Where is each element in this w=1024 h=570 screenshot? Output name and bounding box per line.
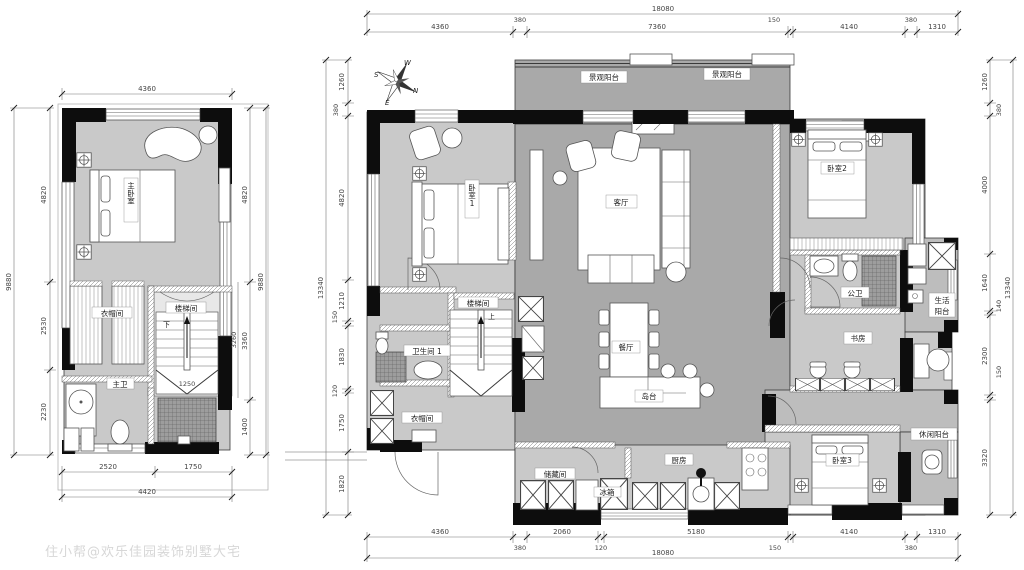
- dim-main-top-total: 18080: [652, 5, 674, 13]
- room-label-kitchen: 厨房: [672, 455, 687, 465]
- dim: 1260: [981, 73, 989, 91]
- dim: 150: [769, 544, 781, 552]
- dim-left-plan-left-total: 9880: [5, 273, 13, 291]
- dims-main-top: 18080 4360 380 7360 150 4140 380 1310: [364, 5, 961, 38]
- dim: 380: [514, 544, 526, 552]
- dim: 4000: [981, 176, 989, 194]
- dim: 380: [514, 16, 526, 24]
- room-label-service-balcony-2: 阳台: [935, 306, 950, 316]
- side-chair: [199, 126, 217, 144]
- dim-main-left-total: 13340: [317, 277, 325, 299]
- nightstand-lamp-icon: [77, 153, 91, 167]
- room-label-view-balcony-1: 景观阳台: [589, 72, 619, 82]
- dim: 4820: [338, 189, 346, 207]
- room-label-dining: 餐厅: [619, 343, 634, 352]
- dim: 380: [905, 16, 917, 24]
- dim: 4820: [241, 186, 249, 204]
- room-label-bedroom3: 卧室3: [832, 455, 852, 465]
- floorplan-drawing: 主卧室 衣帽间 楼梯间 下 主卫: [0, 0, 1024, 570]
- stair-down-mark: 下: [163, 321, 170, 329]
- compass-e: E: [385, 99, 390, 107]
- left-plan: 主卧室 衣帽间 楼梯间 下 主卫: [58, 104, 268, 490]
- dim: 2060: [553, 528, 571, 536]
- room-label-main-closet: 衣帽间: [411, 413, 434, 423]
- dim: 3260: [230, 332, 238, 349]
- dim: 380: [332, 104, 340, 116]
- floorplan-canvas: 主卧室 衣帽间 楼梯间 下 主卫: [0, 0, 1024, 570]
- room-label-bath1: 卫生间 1: [412, 346, 442, 356]
- compass-w: W: [404, 59, 412, 67]
- dim-left-plan-top: 4360: [138, 85, 156, 93]
- dim: 380: [905, 544, 917, 552]
- room-label-main-stair: 楼梯间: [467, 298, 490, 308]
- dim: 1830: [338, 348, 346, 366]
- main-stair: [450, 310, 512, 396]
- dims-main-bottom: 4360 380 2060 120 5180 150 4140 380 1310…: [364, 528, 961, 562]
- dim: 1640: [981, 274, 989, 292]
- dim: 5180: [687, 528, 705, 536]
- nightstand-lamp-icon: [77, 245, 91, 259]
- room-label-study: 书房: [851, 333, 866, 343]
- room-label-service-balcony-1: 生活: [935, 295, 950, 305]
- room-label-bedroom2: 卧室2: [827, 163, 847, 173]
- balcony-window-box: [630, 54, 672, 65]
- dim-left-plan-right-total: 9880: [257, 273, 265, 291]
- dim: 7360: [648, 23, 666, 31]
- room-label-view-balcony-2: 景观阳台: [712, 69, 742, 79]
- room-label-living: 客厅: [614, 197, 629, 207]
- leisure-balcony-chair: [922, 450, 942, 474]
- dim: 120: [331, 385, 339, 397]
- dim: 3360: [241, 332, 249, 350]
- dim: 3320: [981, 449, 989, 467]
- compass-s: S: [374, 71, 379, 79]
- compass-rose: [367, 52, 427, 112]
- dim: 2520: [99, 463, 117, 471]
- dim: 4360: [431, 23, 449, 31]
- dim: 1400: [241, 418, 249, 436]
- dim: 4820: [40, 186, 48, 204]
- dim: 140: [995, 300, 1003, 312]
- dims-main-right: 1260 380 4000 1640 140 2300 150 3320 133…: [981, 57, 1017, 518]
- dim: 150: [768, 16, 780, 24]
- dim: 1260: [338, 73, 346, 91]
- dim: 380: [995, 104, 1003, 116]
- room-label-master-bath: 主卫: [113, 379, 128, 389]
- dining-furniture: [599, 303, 659, 377]
- dim: 1310: [928, 528, 946, 536]
- room-label-public-bath: 公卫: [848, 289, 863, 298]
- room-label-master-bedroom: 主卧室: [126, 181, 135, 205]
- tv-console: [219, 168, 230, 222]
- dim: 2300: [981, 347, 989, 365]
- dim: 4360: [431, 528, 449, 536]
- compass-n: N: [413, 87, 419, 95]
- dim: 120: [595, 544, 607, 552]
- room-label-left-closet: 衣帽间: [101, 308, 124, 318]
- dim: 150: [331, 311, 339, 323]
- stair-up-mark: 上: [488, 312, 495, 321]
- main-plan: 景观阳台 景观阳台 卧室1 客厅 楼梯间 上 卫生间 1 衣帽间 餐厅 岛台 储…: [285, 54, 958, 525]
- room-label-island: 岛台: [642, 391, 657, 401]
- dim: 1210: [338, 292, 346, 310]
- balcony-window-box: [752, 54, 794, 65]
- dim: 2530: [40, 317, 48, 335]
- dim: 4140: [840, 23, 858, 31]
- dim-stair-width: 1250: [179, 380, 196, 388]
- room-label-leisure-balcony: 休闲阳台: [919, 429, 949, 439]
- dim-main-bottom-total: 18080: [652, 549, 674, 557]
- room-label-bedroom1: 卧室1: [467, 184, 476, 208]
- dim: 4140: [840, 528, 858, 536]
- watermark: 住小帮@欢乐佳园装饰别墅大宅: [45, 545, 241, 560]
- dim: 1750: [184, 463, 202, 471]
- dim-main-right-total: 13340: [1004, 277, 1012, 299]
- dim: 150: [995, 366, 1003, 378]
- room-label-storage: 储藏间: [544, 469, 567, 479]
- dim: 1310: [928, 23, 946, 31]
- dim-left-plan-bottom-total: 4420: [138, 488, 156, 496]
- room-label-left-stair: 楼梯间: [175, 303, 198, 313]
- dim: 2230: [40, 403, 48, 421]
- dim: 1820: [338, 475, 346, 493]
- dims-main-left: 1260 380 4820 1210 150 1830 120 1750 182…: [317, 57, 354, 518]
- room-label-fridge: 冰箱: [600, 487, 615, 497]
- dim: 1750: [338, 414, 346, 432]
